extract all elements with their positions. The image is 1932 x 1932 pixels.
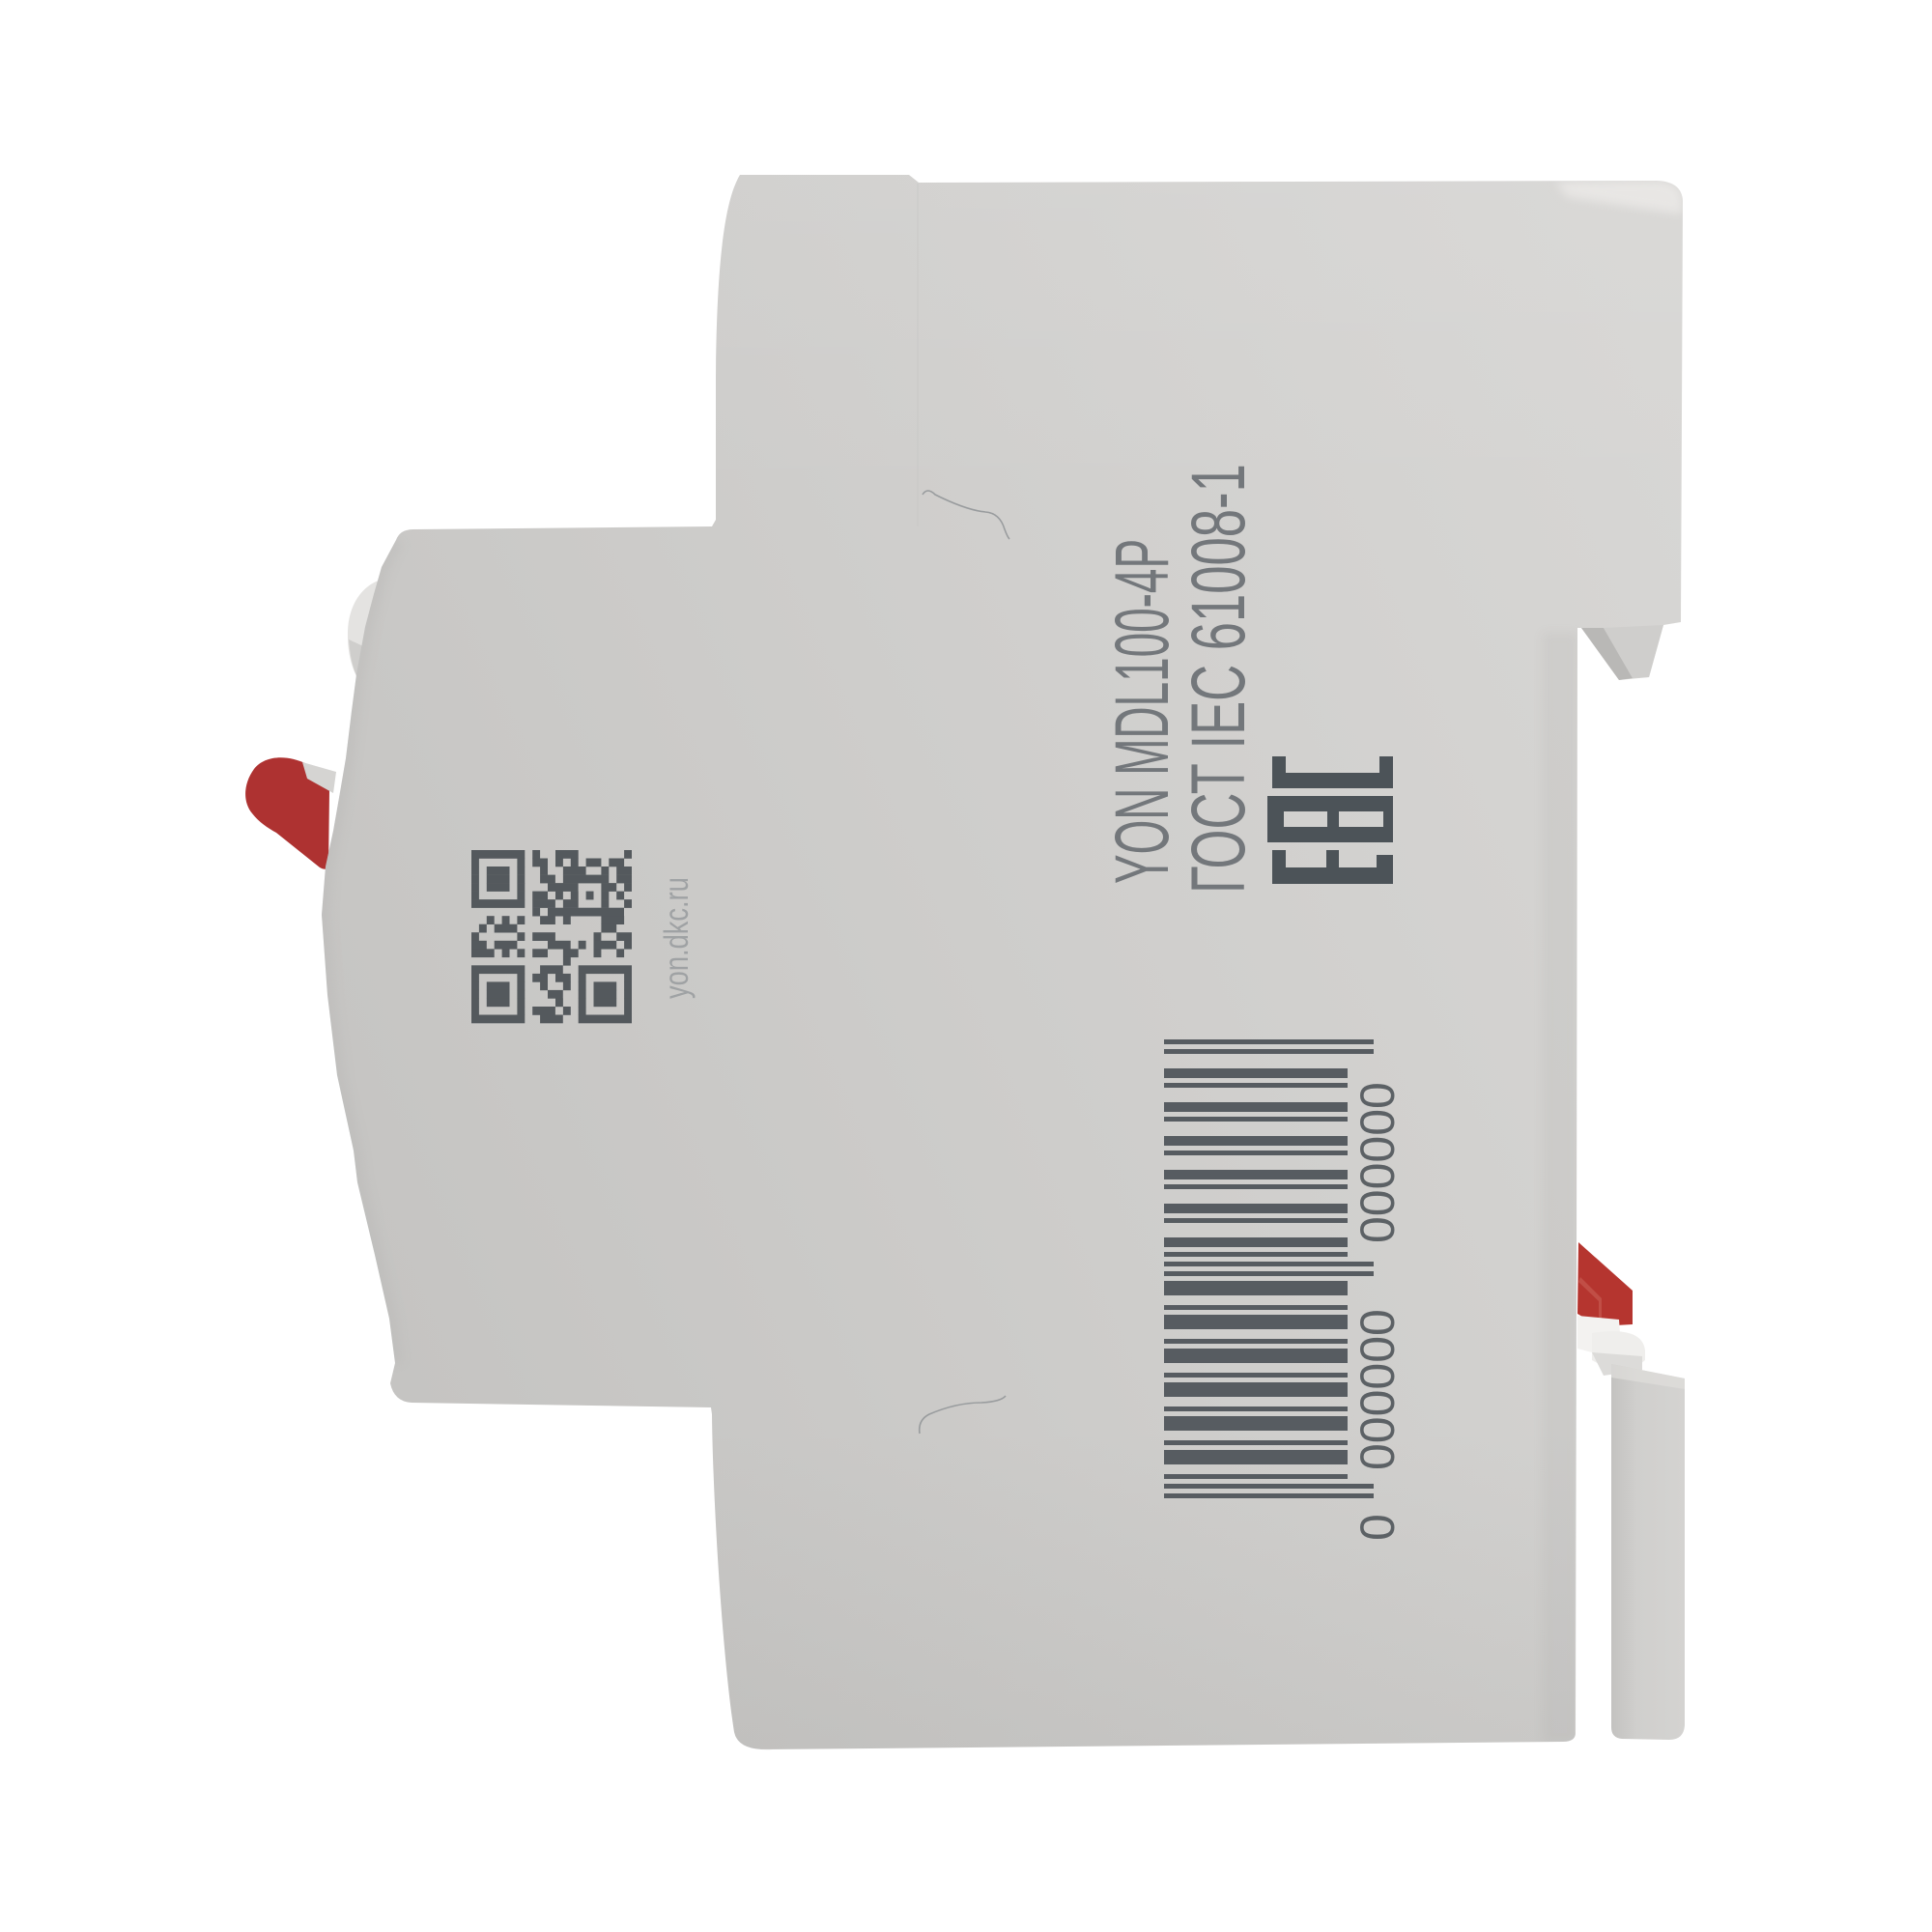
svg-text:000000: 000000 bbox=[1350, 1309, 1405, 1470]
svg-text:ГОСТ IEC 61008-1: ГОСТ IEC 61008-1 bbox=[1176, 464, 1261, 894]
svg-text:YON MDL100-4P: YON MDL100-4P bbox=[1099, 539, 1184, 884]
svg-text:yon.dkc.ru: yon.dkc.ru bbox=[658, 877, 696, 999]
svg-text:0: 0 bbox=[1350, 1514, 1405, 1541]
svg-text:000000: 000000 bbox=[1350, 1082, 1405, 1243]
